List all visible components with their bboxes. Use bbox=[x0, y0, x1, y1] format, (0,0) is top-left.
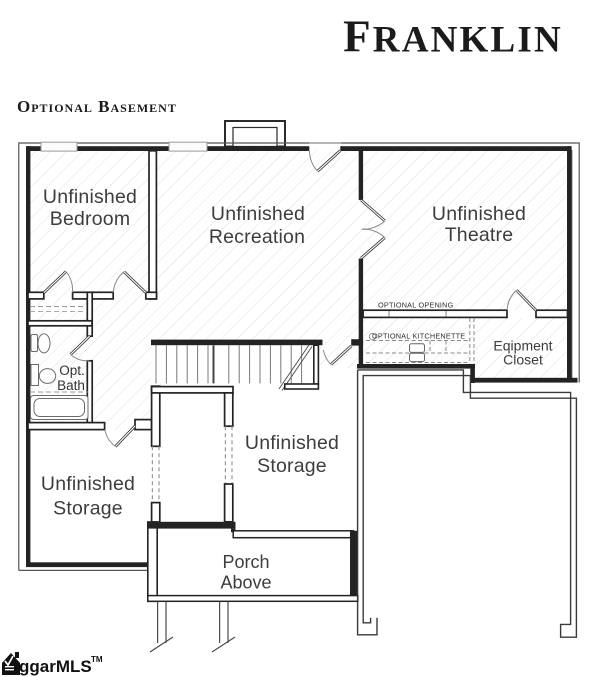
svg-text:OPTIONAL OPENING: OPTIONAL OPENING bbox=[378, 301, 454, 310]
svg-text:Storage: Storage bbox=[257, 455, 327, 477]
svg-text:Unfinished: Unfinished bbox=[211, 203, 305, 225]
svg-text:Optional Basement: Optional Basement bbox=[17, 97, 177, 116]
svg-text:Opt.: Opt. bbox=[59, 363, 85, 378]
svg-text:Closet: Closet bbox=[503, 352, 543, 368]
svg-text:Bedroom: Bedroom bbox=[50, 208, 131, 230]
svg-text:Bath: Bath bbox=[57, 378, 85, 393]
svg-text:Unfinished: Unfinished bbox=[43, 186, 137, 208]
svg-text:Unfinished: Unfinished bbox=[245, 432, 339, 454]
svg-text:TM: TM bbox=[91, 655, 103, 664]
svg-text:FRANKLIN: FRANKLIN bbox=[343, 12, 563, 62]
svg-text:Recreation: Recreation bbox=[209, 226, 305, 248]
svg-text:Unfinished: Unfinished bbox=[41, 473, 135, 495]
svg-text:Storage: Storage bbox=[53, 498, 123, 520]
svg-text:Unfinished: Unfinished bbox=[432, 203, 526, 225]
svg-text:Above: Above bbox=[220, 573, 271, 593]
svg-text:Theatre: Theatre bbox=[445, 224, 514, 246]
svg-text:ggarMLS: ggarMLS bbox=[19, 657, 92, 676]
svg-text:OPTIONAL KITCHENETTE: OPTIONAL KITCHENETTE bbox=[372, 332, 465, 341]
svg-text:Porch: Porch bbox=[222, 552, 269, 572]
